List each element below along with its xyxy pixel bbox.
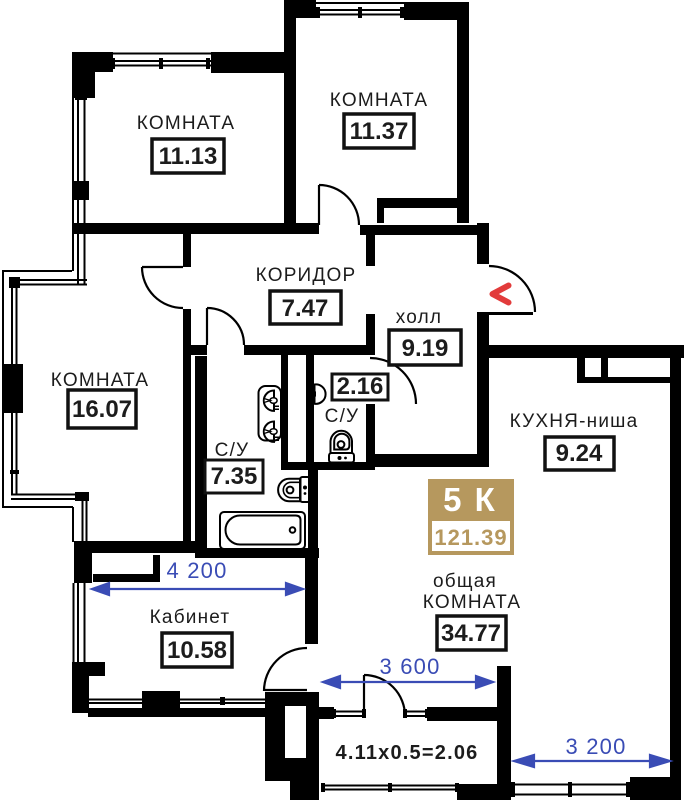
svg-text:34.77: 34.77	[441, 620, 501, 647]
svg-text:С/У: С/У	[215, 440, 250, 461]
svg-text:121.39: 121.39	[434, 525, 507, 550]
svg-text:4 200: 4 200	[166, 558, 227, 583]
svg-text:4.11x0.5=2.06: 4.11x0.5=2.06	[336, 742, 479, 764]
svg-text:11.37: 11.37	[350, 118, 409, 145]
svg-text:9.19: 9.19	[402, 335, 449, 362]
svg-text:7.47: 7.47	[282, 295, 329, 322]
svg-text:10.58: 10.58	[167, 637, 227, 664]
svg-text:общая: общая	[433, 571, 497, 592]
svg-text:5 К: 5 К	[443, 481, 497, 518]
svg-text:9.24: 9.24	[556, 440, 603, 467]
svg-text:КУХНЯ-ниша: КУХНЯ-ниша	[510, 411, 639, 432]
svg-text:11.13: 11.13	[159, 143, 218, 170]
svg-text:холл: холл	[396, 307, 442, 328]
svg-text:КОМНАТА: КОМНАТА	[137, 113, 235, 134]
svg-text:2.16: 2.16	[337, 373, 384, 400]
svg-text:3 200: 3 200	[565, 734, 626, 759]
svg-text:С/У: С/У	[325, 406, 360, 427]
svg-text:7.35: 7.35	[211, 463, 258, 490]
svg-text:КОМНАТА: КОМНАТА	[423, 592, 521, 613]
svg-text:КОМНАТА: КОМНАТА	[51, 370, 149, 391]
svg-text:КОМНАТА: КОМНАТА	[330, 90, 428, 111]
svg-text:3 600: 3 600	[379, 654, 440, 679]
svg-text:Кабинет: Кабинет	[150, 607, 231, 628]
svg-text:16.07: 16.07	[72, 396, 132, 423]
svg-text:КОРИДОР: КОРИДОР	[256, 265, 357, 286]
